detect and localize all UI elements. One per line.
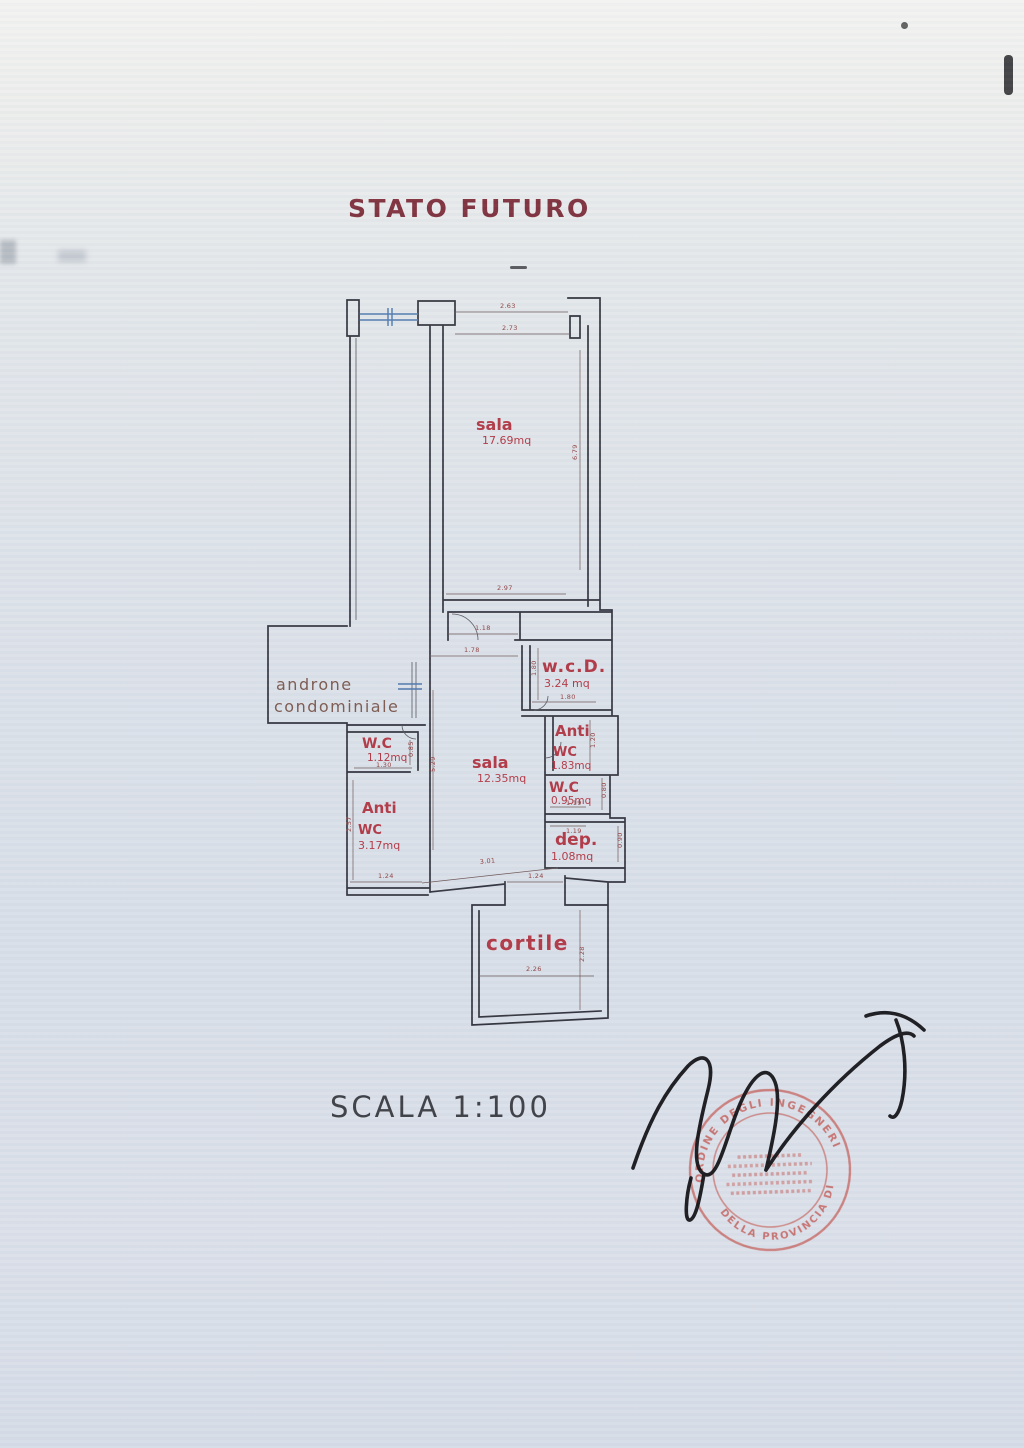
dim-wcd-width: 1.80 <box>560 693 576 701</box>
scan-artifact-left-smudge <box>0 240 16 264</box>
room-sala-piccola-name: sala <box>472 753 509 772</box>
room-androne-line2: condominiale <box>274 697 399 716</box>
room-dep-area: 1.08mq <box>551 850 593 863</box>
dim-anti-dx-height: 1.20 <box>589 732 597 748</box>
dim-anti-sx-width: 1.24 <box>378 872 394 880</box>
room-wc-sx-area: 1.12mq <box>367 752 407 764</box>
room-anti-wc-sx-line2: WC <box>358 823 382 838</box>
scale-label: SCALA 1:100 <box>330 1090 551 1124</box>
room-androne-line1: androne <box>276 675 353 694</box>
scanned-floor-plan-page: STATO FUTURO 2.63 2.73 6. <box>0 0 1024 1448</box>
room-wc-dx-name: W.C <box>549 780 579 796</box>
dim-cortile-width: 2.26 <box>526 965 542 973</box>
room-anti-wc-sx-line1: Anti <box>362 799 397 817</box>
dim-passage-a: 1.18 <box>475 624 491 632</box>
signature-stroke-diagonal <box>766 1033 914 1170</box>
room-sala-grande-area: 17.69mq <box>482 434 531 447</box>
scan-artifact-left-blob <box>58 250 86 262</box>
dim-cortile-height: 2.28 <box>578 946 586 962</box>
room-labels: sala 17.69mq w.c.D. 3.24 mq Anti WC 1.83… <box>274 415 606 955</box>
dim-wc-dx-height: 0.80 <box>600 782 608 798</box>
floor-plan-svg: 2.63 2.73 6.79 2.97 1.18 1.78 1.80 1.80 … <box>250 270 670 1050</box>
dim-sala-width: 2.97 <box>497 584 513 592</box>
room-wcd-name: w.c.D. <box>542 657 606 677</box>
dim-sala-height: 6.79 <box>571 444 579 460</box>
signature-svg <box>608 1008 938 1238</box>
dim-wcd-height: 1.80 <box>530 660 538 676</box>
room-dep-name: dep. <box>555 830 597 850</box>
signature-stroke-zigzag <box>633 1058 778 1175</box>
room-anti-wc-sx-area: 3.17mq <box>358 839 400 852</box>
dim-diagonal: 3.01 <box>479 856 495 866</box>
room-anti-wc-dx-line1: Anti <box>555 722 590 740</box>
window-marks <box>360 308 422 689</box>
room-wcd-area: 3.24 mq <box>544 677 590 690</box>
scan-artifact-dot <box>901 22 908 29</box>
window-icon <box>360 308 422 689</box>
page-title: STATO FUTURO <box>348 194 591 223</box>
signature-strokes <box>633 1013 924 1220</box>
floor-plan: 2.63 2.73 6.79 2.97 1.18 1.78 1.80 1.80 … <box>250 270 670 1050</box>
dim-cortile-top: 1.24 <box>528 872 544 880</box>
dim-dep-height: 0.90 <box>616 832 624 848</box>
dim-anti-sx-height: 2.57 <box>345 816 353 832</box>
scan-artifact-right-edge <box>1004 55 1013 95</box>
room-anti-wc-dx-area: 1.83mq <box>551 760 591 772</box>
signature <box>608 1008 938 1238</box>
dimension-labels: 2.63 2.73 6.79 2.97 1.18 1.78 1.80 1.80 … <box>345 302 624 973</box>
scan-artifact-dash <box>510 266 527 269</box>
dim-top-2: 2.73 <box>502 324 518 332</box>
dim-top-1: 2.63 <box>500 302 516 310</box>
signature-stroke-descender <box>686 1174 704 1220</box>
dim-hall-height: 5.29 <box>429 756 437 772</box>
room-wc-dx-area: 0.95mq <box>551 795 591 807</box>
dim-passage-b: 1.78 <box>464 646 480 654</box>
room-sala-grande-name: sala <box>476 415 513 434</box>
dim-wc-sx-height: 0.85 <box>407 741 415 757</box>
room-sala-piccola-area: 12.35mq <box>477 772 526 785</box>
room-anti-wc-dx-line2: WC <box>553 745 577 760</box>
room-wc-sx-name: W.C <box>362 736 392 752</box>
room-cortile-name: cortile <box>486 931 569 955</box>
